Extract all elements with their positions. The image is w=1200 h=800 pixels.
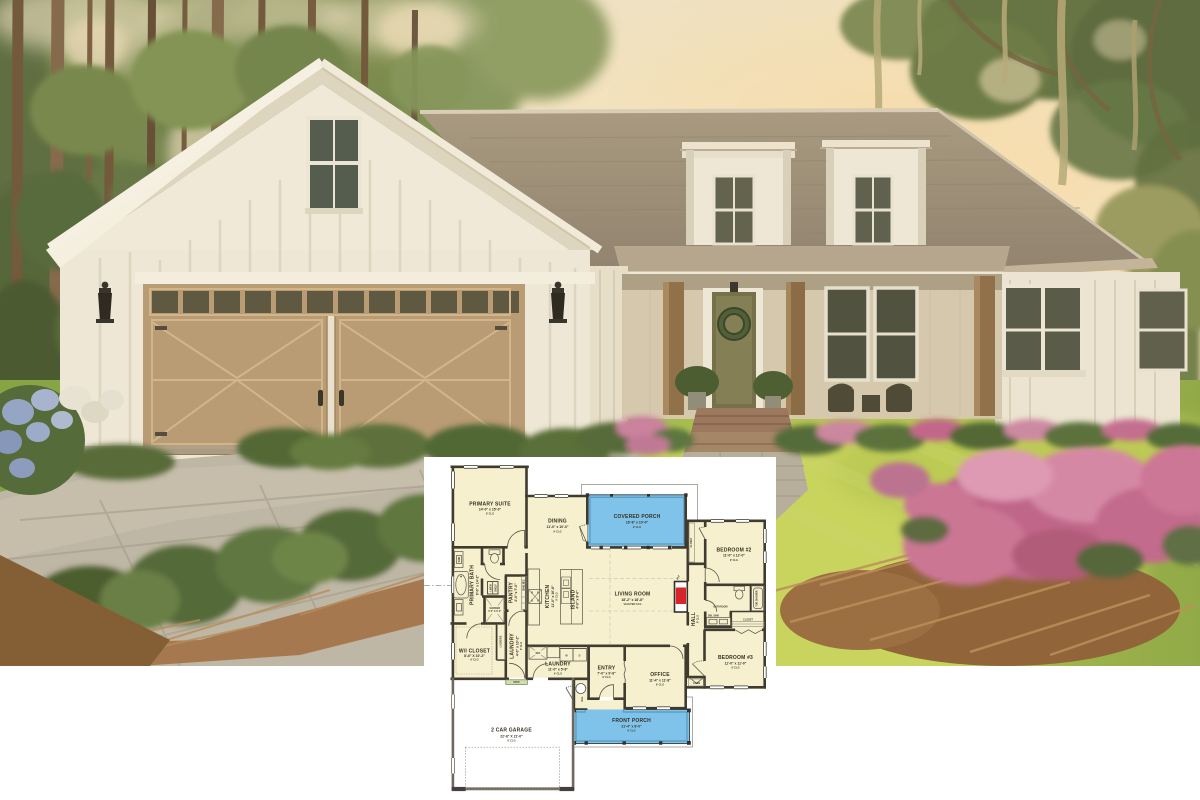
svg-text:11'-0" x 11'-0": 11'-0" x 11'-0"	[725, 662, 747, 666]
svg-text:21'-4" x 8'-0": 21'-4" x 8'-0"	[621, 725, 642, 729]
svg-text:LINEN: LINEN	[489, 584, 492, 591]
svg-text:9' CLG: 9' CLG	[507, 739, 515, 743]
svg-text:LINEN: LINEN	[693, 682, 700, 685]
svg-text:STEP: STEP	[513, 681, 520, 684]
svg-text:9' CLG: 9' CLG	[633, 525, 641, 529]
svg-text:14'-0" x 15'-0": 14'-0" x 15'-0"	[479, 508, 502, 512]
svg-text:SHELF: SHELF	[495, 584, 498, 592]
svg-text:LIVING ROOM: LIVING ROOM	[615, 592, 651, 598]
svg-text:9' CLG: 9' CLG	[554, 672, 562, 676]
svg-text:SHELVES: SHELVES	[522, 579, 525, 590]
svg-text:DINING: DINING	[548, 519, 567, 525]
svg-text:TUB SHOWER: TUB SHOWER	[756, 590, 759, 607]
svg-text:W.H.: W.H.	[581, 696, 584, 702]
svg-text:8'-6" X 10'-2": 8'-6" X 10'-2"	[464, 654, 485, 658]
svg-text:6'-0" x 14'-2": 6'-0" x 14'-2"	[476, 574, 480, 595]
svg-text:9' CLG: 9' CLG	[656, 683, 664, 687]
svg-text:REF: REF	[536, 652, 541, 655]
svg-text:CLOSET: CLOSET	[690, 537, 693, 547]
svg-text:4'-0" x 7'-0": 4'-0" x 7'-0"	[514, 583, 518, 602]
svg-text:FRONT PORCH: FRONT PORCH	[612, 718, 651, 724]
svg-text:DBL SINK: DBL SINK	[708, 615, 720, 618]
svg-text:11'-0" x 16'-8": 11'-0" x 16'-8"	[551, 585, 555, 607]
svg-text:18'-2" x 18'-8": 18'-2" x 18'-8"	[621, 598, 644, 602]
svg-text:11'-4" x 11'-8": 11'-4" x 11'-8"	[649, 679, 671, 683]
svg-text:LOCKERS: LOCKERS	[499, 635, 502, 647]
svg-text:D: D	[579, 655, 581, 658]
svg-text:2 CAR GARAGE: 2 CAR GARAGE	[491, 728, 532, 734]
svg-text:9' CLG: 9' CLG	[553, 530, 561, 534]
svg-text:9' CLG: 9' CLG	[627, 729, 635, 733]
svg-text:11'-0" x 12'-0": 11'-0" x 12'-0"	[723, 554, 745, 558]
svg-text:4'-0" x 8'-0": 4'-0" x 8'-0"	[576, 590, 580, 609]
svg-text:22'-8" X 21'-0": 22'-8" X 21'-0"	[500, 735, 523, 739]
svg-text:9' CLG: 9' CLG	[731, 666, 739, 670]
svg-text:COVERED PORCH: COVERED PORCH	[614, 514, 661, 520]
svg-text:9' CLG: 9' CLG	[486, 512, 494, 516]
svg-text:SINK: SINK	[458, 556, 461, 562]
svg-text:9' CLG: 9' CLG	[470, 658, 478, 662]
svg-text:VAULTED CLG: VAULTED CLG	[623, 602, 641, 606]
svg-text:9' CLG: 9' CLG	[730, 558, 738, 562]
svg-text:11'-0" x 5'-8": 11'-0" x 5'-8"	[548, 668, 568, 672]
svg-text:9' CLG: 9' CLG	[602, 675, 610, 679]
svg-text:9' CLG: 9' CLG	[695, 615, 699, 623]
svg-text:OFFICE: OFFICE	[650, 672, 670, 678]
svg-text:4'-0" X 3'-0": 4'-0" X 3'-0"	[488, 610, 501, 613]
svg-text:11'-0" x 10'-0": 11'-0" x 10'-0"	[547, 525, 569, 529]
svg-text:9' CLG: 9' CLG	[555, 592, 559, 600]
svg-text:7'-0" x 9'-8": 7'-0" x 9'-8"	[597, 672, 616, 676]
svg-text:4'-0" x 10'-2": 4'-0" x 10'-2"	[515, 635, 519, 656]
svg-text:9' CLG: 9' CLG	[519, 642, 523, 650]
svg-text:BEDROOM #3: BEDROOM #3	[718, 655, 753, 661]
svg-text:CLOSET: CLOSET	[743, 618, 753, 621]
svg-text:16'-8" x 10'-0": 16'-8" x 10'-0"	[626, 521, 649, 525]
svg-text:BATHROOM: BATHROOM	[714, 606, 728, 609]
